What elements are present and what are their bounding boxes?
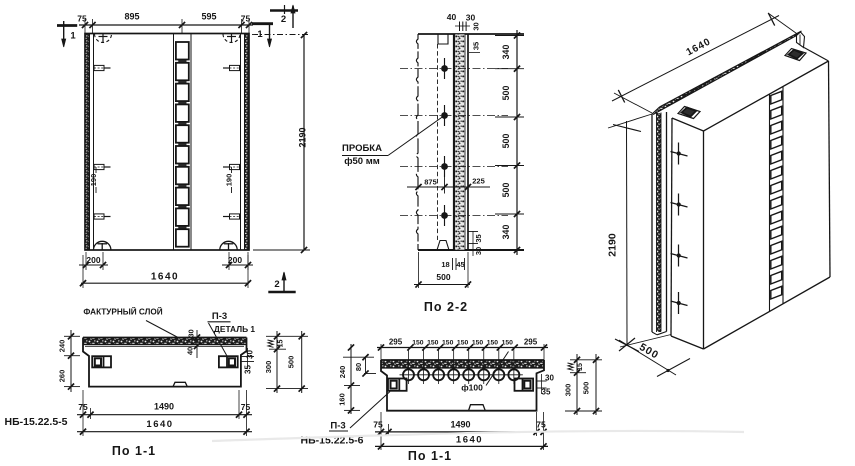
svg-text:240: 240 (338, 366, 347, 379)
svg-text:500: 500 (436, 272, 450, 282)
svg-text:295: 295 (389, 338, 403, 347)
svg-text:30: 30 (466, 13, 476, 23)
svg-text:15: 15 (278, 340, 285, 348)
svg-text:75: 75 (536, 420, 546, 430)
svg-text:160: 160 (338, 393, 347, 406)
svg-text:18: 18 (441, 260, 449, 269)
svg-text:150: 150 (487, 340, 499, 347)
svg-text:ПРОБКА: ПРОБКА (342, 143, 382, 154)
svg-text:П-3: П-3 (330, 421, 345, 432)
svg-text:500: 500 (501, 183, 511, 198)
svg-text:240: 240 (58, 340, 67, 353)
svg-text:875: 875 (424, 178, 437, 187)
svg-text:30: 30 (474, 247, 483, 255)
svg-text:595: 595 (201, 12, 216, 22)
svg-text:2: 2 (274, 279, 279, 290)
svg-text:1490: 1490 (450, 420, 470, 430)
svg-text:ф50 мм: ф50 мм (344, 156, 380, 167)
svg-text:75: 75 (373, 420, 383, 430)
svg-text:75: 75 (77, 14, 87, 24)
svg-text:500: 500 (582, 382, 591, 395)
svg-text:30: 30 (187, 329, 196, 337)
svg-text:35: 35 (542, 388, 551, 397)
svg-text:260: 260 (58, 370, 67, 383)
svg-text:1: 1 (257, 29, 263, 40)
svg-text:35: 35 (472, 42, 481, 50)
svg-text:200: 200 (228, 255, 242, 265)
svg-text:75: 75 (78, 402, 88, 412)
svg-text:2: 2 (281, 14, 286, 25)
svg-text:40: 40 (186, 347, 195, 355)
svg-text:1640: 1640 (456, 435, 483, 446)
svg-text:75: 75 (241, 402, 251, 412)
svg-text:ф100: ф100 (461, 383, 483, 393)
svg-text:190: 190 (89, 174, 98, 187)
svg-text:500: 500 (501, 134, 511, 149)
svg-text:2190: 2190 (607, 233, 619, 257)
svg-text:150: 150 (457, 340, 469, 347)
svg-text:1640: 1640 (151, 272, 179, 283)
svg-text:1: 1 (70, 31, 76, 42)
svg-text:200: 200 (86, 255, 100, 265)
svg-text:500: 500 (287, 356, 296, 369)
svg-text:35: 35 (244, 365, 253, 374)
svg-text:35: 35 (474, 234, 483, 242)
svg-text:895: 895 (124, 12, 139, 22)
svg-text:340: 340 (501, 45, 511, 60)
svg-text:150: 150 (502, 340, 514, 347)
svg-text:340: 340 (501, 225, 511, 240)
svg-text:300: 300 (264, 361, 273, 374)
svg-text:2190: 2190 (298, 127, 308, 147)
svg-text:75: 75 (241, 14, 251, 24)
svg-text:30: 30 (246, 350, 255, 359)
svg-text:300: 300 (564, 384, 573, 397)
svg-text:По 1-1: По 1-1 (408, 449, 452, 463)
svg-text:По 1-1: По 1-1 (112, 444, 156, 458)
svg-text:ФАКТУРНЫЙ СЛОЙ: ФАКТУРНЫЙ СЛОЙ (83, 306, 162, 317)
svg-text:150: 150 (472, 340, 484, 347)
svg-text:225: 225 (472, 177, 485, 186)
svg-text:150: 150 (442, 340, 454, 347)
svg-text:По 2-2: По 2-2 (424, 300, 468, 314)
svg-text:15: 15 (577, 363, 584, 371)
svg-text:45: 45 (456, 260, 464, 269)
svg-text:295: 295 (524, 338, 538, 347)
svg-text:150: 150 (427, 340, 439, 347)
svg-text:150: 150 (412, 340, 424, 347)
svg-text:40: 40 (447, 12, 457, 22)
svg-text:80: 80 (354, 363, 363, 371)
svg-text:НБ-15.22.5-5: НБ-15.22.5-5 (5, 416, 68, 428)
svg-text:1640: 1640 (146, 419, 173, 430)
svg-text:ДЕТАЛЬ 1: ДЕТАЛЬ 1 (214, 324, 256, 334)
svg-text:П-3: П-3 (212, 311, 227, 322)
svg-text:190: 190 (224, 174, 233, 187)
svg-text:500: 500 (501, 86, 511, 101)
svg-text:1490: 1490 (154, 402, 174, 412)
svg-text:30: 30 (472, 22, 481, 30)
